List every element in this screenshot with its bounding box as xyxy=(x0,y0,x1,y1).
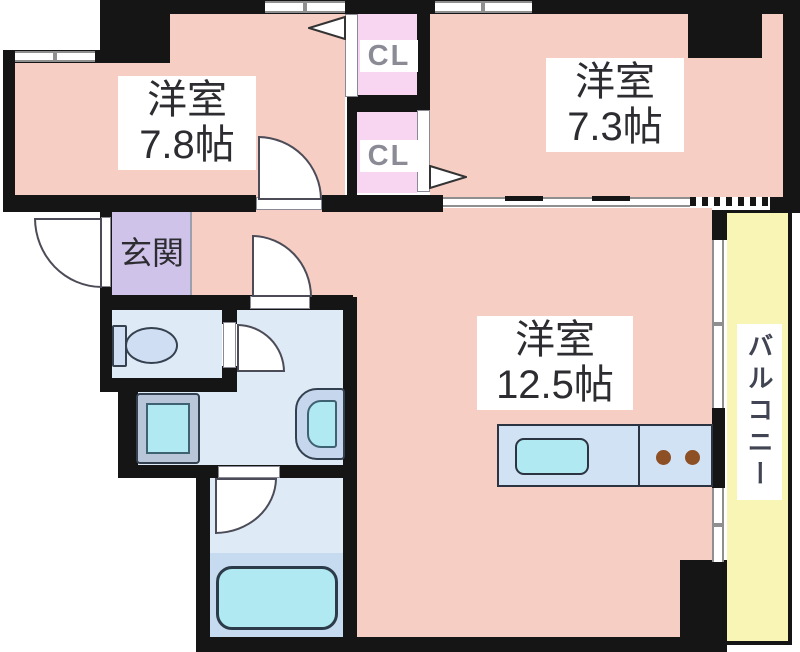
wall-segment xyxy=(770,197,800,213)
closet-door-panel xyxy=(345,14,358,97)
wall-segment xyxy=(3,195,256,212)
wall-segment xyxy=(100,378,237,392)
wall-segment xyxy=(417,0,430,103)
wall-segment xyxy=(680,560,727,652)
entrance-step-line xyxy=(190,212,192,295)
balcony-label: バルコニー xyxy=(737,324,782,500)
wall-segment xyxy=(118,392,138,465)
stove-burner-icon xyxy=(685,450,700,465)
wall-segment xyxy=(712,408,725,488)
door-panel xyxy=(223,322,236,368)
window xyxy=(265,1,345,13)
sliding-partition xyxy=(443,197,690,207)
open-wall-dashed-line xyxy=(690,197,770,206)
room-name: 洋室 xyxy=(550,60,680,105)
wall-segment xyxy=(100,0,170,63)
door-panel xyxy=(250,296,310,309)
toilet-bowl-icon xyxy=(125,327,178,364)
door-panel xyxy=(218,466,280,478)
partition-tick xyxy=(505,196,543,201)
room-size: 7.8帖 xyxy=(122,123,252,168)
bathtub-icon xyxy=(216,566,338,630)
door-panel xyxy=(101,217,111,287)
entrance-door-arc xyxy=(34,218,102,288)
room-73-label: 洋室 7.3帖 xyxy=(546,58,684,152)
wall-segment xyxy=(322,195,443,212)
room-size: 7.3帖 xyxy=(550,105,680,150)
entrance-label: 玄関 xyxy=(114,236,190,272)
wall-segment xyxy=(712,210,727,240)
room-125-label: 洋室 12.5帖 xyxy=(477,316,633,410)
stove-burner-icon xyxy=(656,450,671,465)
wall-segment xyxy=(222,366,237,392)
wall-segment xyxy=(196,478,210,652)
vanity-sink-icon xyxy=(295,388,345,460)
wall-segment xyxy=(347,103,357,195)
balcony-sliding-door xyxy=(712,240,724,408)
washing-machine-icon xyxy=(136,393,200,464)
balcony-border xyxy=(727,641,792,645)
closet-door-arrow-icon xyxy=(308,16,346,40)
wall-segment xyxy=(100,295,353,310)
balcony-sliding-door xyxy=(712,488,724,562)
wall-segment xyxy=(196,637,727,652)
counter-divider xyxy=(638,426,640,485)
room-name: 洋室 xyxy=(481,318,629,363)
room-name: 洋室 xyxy=(122,78,252,123)
wall-segment xyxy=(3,50,15,212)
closet-door-arrow-icon xyxy=(429,165,467,189)
kitchen-counter xyxy=(497,424,713,487)
window xyxy=(15,51,95,62)
partition-tick xyxy=(592,196,630,201)
wall-segment xyxy=(783,0,800,211)
wall-segment xyxy=(343,297,357,640)
room-size: 12.5帖 xyxy=(481,363,629,408)
balcony-border xyxy=(788,210,792,645)
closet-upper-label: CL xyxy=(360,40,418,72)
room-78-label: 洋室 7.8帖 xyxy=(118,76,256,170)
closet-lower-label: CL xyxy=(360,140,418,172)
kitchen-sink-icon xyxy=(515,438,589,475)
floor-plan: 洋室 7.8帖 洋室 7.3帖 洋室 12.5帖 玄関 CL CL バルコニー xyxy=(0,0,800,652)
pillar xyxy=(688,10,762,58)
window xyxy=(435,1,532,13)
